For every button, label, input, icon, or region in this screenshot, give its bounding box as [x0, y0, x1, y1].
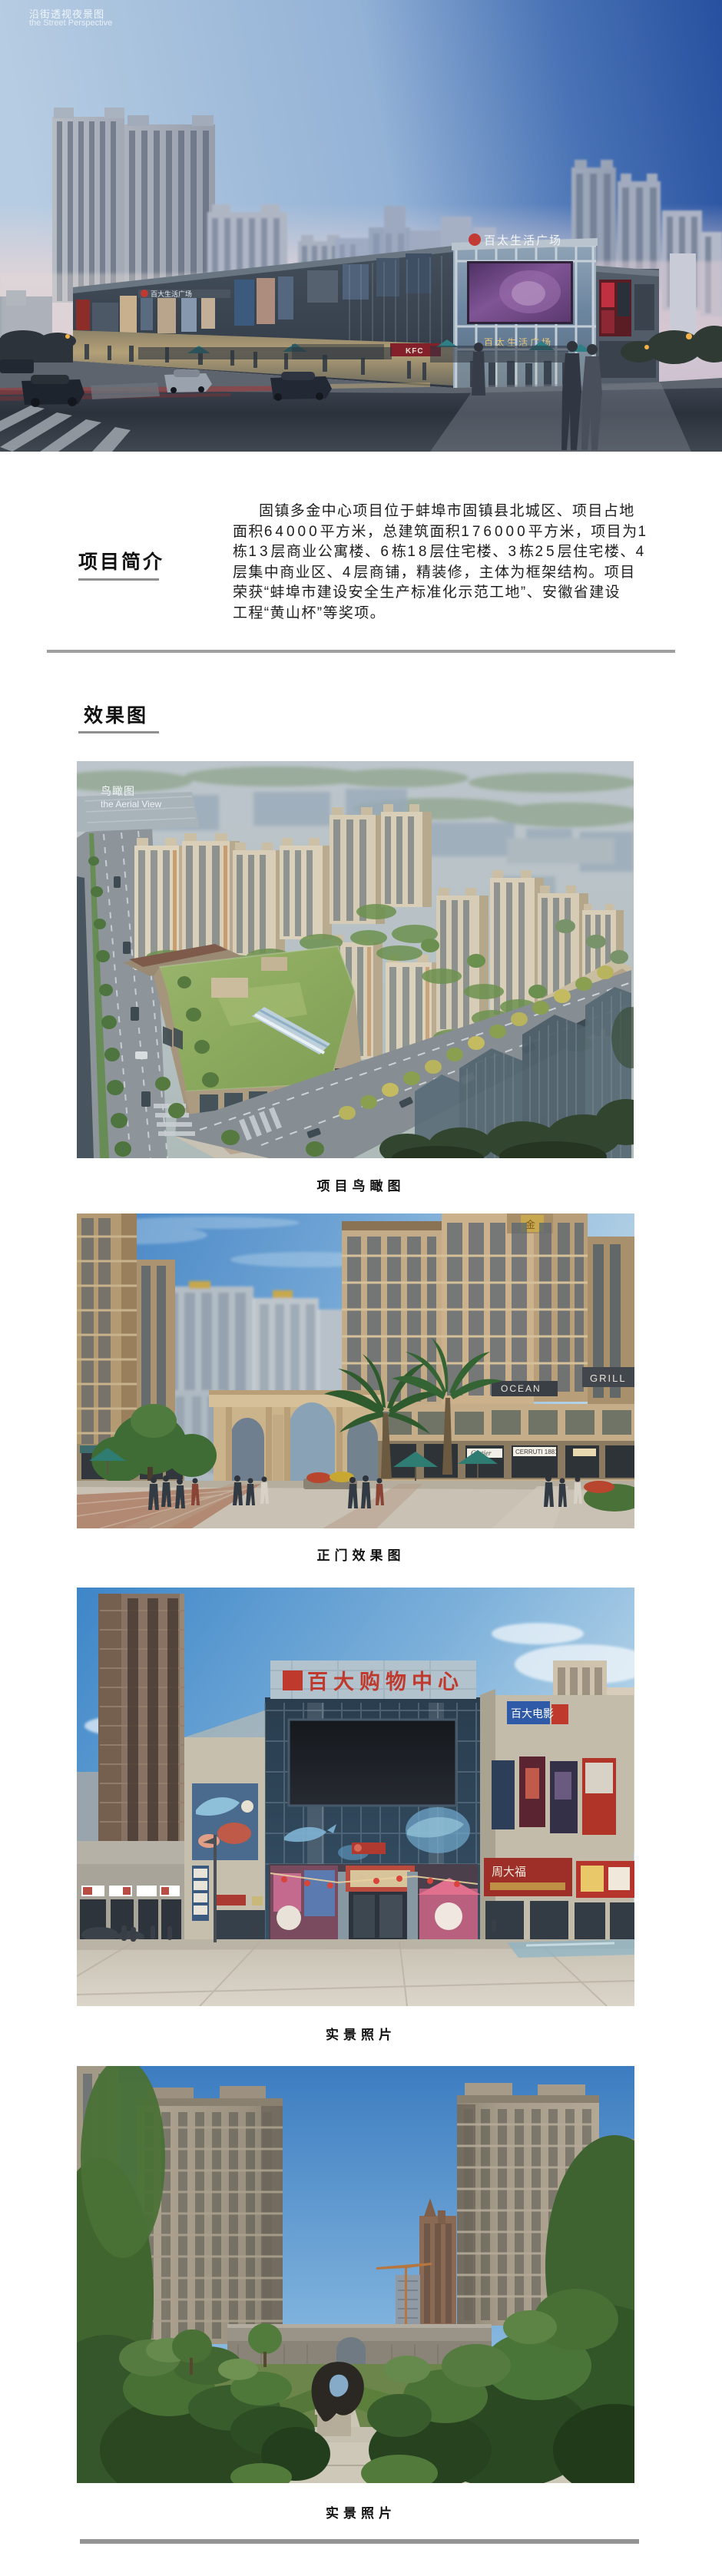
svg-text:百大电影: 百大电影 — [511, 1707, 554, 1720]
svg-text:百大购物中心: 百大购物中心 — [307, 1670, 464, 1694]
svg-text:OCEAN: OCEAN — [501, 1383, 541, 1394]
svg-text:鸟瞰图: 鸟瞰图 — [101, 785, 135, 797]
svg-text:KFC: KFC — [406, 347, 424, 356]
svg-text:周大福: 周大福 — [492, 1866, 526, 1879]
svg-text:the Aerial View: the Aerial View — [101, 799, 161, 810]
svg-text:GRILL: GRILL — [590, 1372, 627, 1384]
svg-text:CERRUTI 1881: CERRUTI 1881 — [515, 1449, 558, 1455]
svg-text:百大生活广场: 百大生活广场 — [151, 290, 192, 298]
svg-text:百太生活广场: 百太生活广场 — [484, 234, 562, 247]
